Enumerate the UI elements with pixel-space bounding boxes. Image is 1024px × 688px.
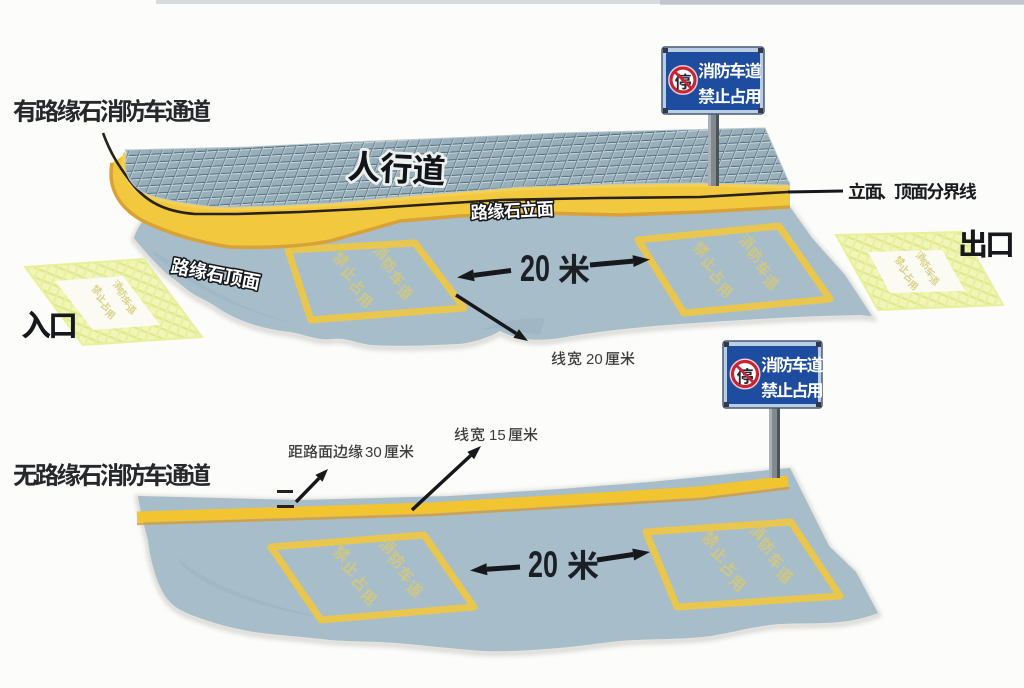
svg-text:20: 20 [520,248,550,289]
svg-text:20: 20 [586,351,603,368]
svg-text:30: 30 [365,444,382,461]
svg-text:20: 20 [528,544,558,585]
svg-text:15: 15 [489,427,506,444]
